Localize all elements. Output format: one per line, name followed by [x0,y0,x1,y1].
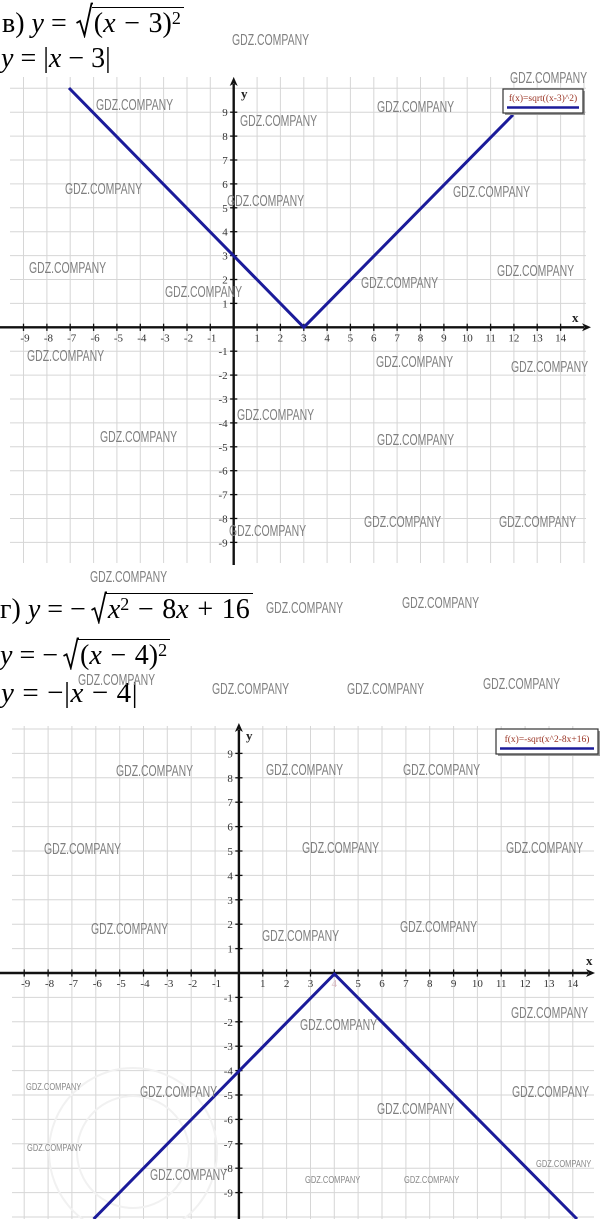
svg-text:11: 11 [485,332,496,344]
svg-text:9: 9 [227,748,233,760]
svg-text:x: x [572,310,579,325]
svg-text:-4: -4 [219,418,229,430]
svg-text:-4: -4 [224,1066,234,1078]
svg-text:-9: -9 [219,537,229,549]
svg-text:6: 6 [379,978,385,990]
svg-text:7: 7 [227,797,233,809]
svg-text:-9: -9 [21,978,31,990]
svg-text:-7: -7 [224,1139,234,1151]
svg-text:14: 14 [555,332,567,344]
svg-text:7: 7 [403,978,409,990]
svg-text:10: 10 [462,332,474,344]
svg-text:-6: -6 [91,332,101,344]
svg-text:x: x [586,953,593,968]
svg-text:2: 2 [278,332,284,344]
svg-text:5: 5 [355,978,361,990]
svg-text:4: 4 [324,332,330,344]
svg-text:4: 4 [222,227,228,239]
svg-text:-4: -4 [140,978,150,990]
svg-text:7: 7 [394,332,400,344]
svg-text:-9: -9 [20,332,30,344]
svg-text:-5: -5 [224,1090,234,1102]
svg-text:-8: -8 [219,514,229,526]
svg-text:13: 13 [532,332,544,344]
svg-text:-3: -3 [164,978,174,990]
svg-text:-4: -4 [137,332,147,344]
svg-text:6: 6 [371,332,377,344]
svg-text:-5: -5 [117,978,127,990]
svg-text:6: 6 [227,822,233,834]
svg-text:-3: -3 [161,332,171,344]
svg-text:-1: -1 [224,992,233,1004]
svg-text:9: 9 [222,107,228,119]
svg-text:5: 5 [227,846,233,858]
svg-text:3: 3 [227,895,233,907]
svg-text:1: 1 [260,978,266,990]
svg-text:12: 12 [508,332,519,344]
svg-text:8: 8 [427,978,433,990]
svg-text:f(x)=sqrt((x-3)^2): f(x)=sqrt((x-3)^2) [509,93,577,104]
svg-text:3: 3 [301,332,307,344]
svg-text:-1: -1 [219,346,228,358]
svg-text:1: 1 [227,944,233,956]
svg-text:8: 8 [227,773,233,785]
svg-text:-7: -7 [69,978,79,990]
svg-text:2: 2 [227,919,233,931]
svg-text:2: 2 [284,978,290,990]
svg-text:-1: -1 [207,332,216,344]
svg-text:5: 5 [348,332,354,344]
svg-text:6: 6 [222,179,228,191]
svg-text:-6: -6 [224,1114,234,1126]
svg-text:3: 3 [308,978,314,990]
svg-text:11: 11 [496,978,507,990]
svg-text:9: 9 [441,332,447,344]
svg-text:-2: -2 [188,978,197,990]
svg-text:1: 1 [254,332,260,344]
svg-text:-2: -2 [184,332,193,344]
svg-text:-7: -7 [219,490,229,502]
svg-text:-7: -7 [67,332,77,344]
svg-text:y: y [246,728,253,743]
svg-text:12: 12 [520,978,531,990]
svg-text:f(x)=-sqrt(x^2-8x+16): f(x)=-sqrt(x^2-8x+16) [505,734,590,745]
svg-text:9: 9 [451,978,457,990]
svg-text:14: 14 [567,978,579,990]
svg-text:13: 13 [544,978,556,990]
svg-text:-5: -5 [114,332,124,344]
svg-text:-8: -8 [44,332,54,344]
svg-text:4: 4 [332,978,338,990]
svg-text:8: 8 [222,131,228,143]
svg-text:-6: -6 [93,978,103,990]
svg-text:8: 8 [418,332,424,344]
svg-text:-5: -5 [219,442,229,454]
svg-text:-9: -9 [224,1188,234,1200]
svg-text:4: 4 [227,870,233,882]
svg-text:-3: -3 [219,394,229,406]
svg-text:-6: -6 [219,466,229,478]
svg-text:y: y [241,86,248,101]
svg-text:-2: -2 [224,1017,233,1029]
svg-text:10: 10 [472,978,484,990]
svg-text:-2: -2 [219,370,228,382]
svg-text:3: 3 [222,251,228,263]
svg-text:-8: -8 [45,978,55,990]
svg-text:7: 7 [222,155,228,167]
svg-text:-1: -1 [212,978,221,990]
svg-text:-3: -3 [224,1041,234,1053]
